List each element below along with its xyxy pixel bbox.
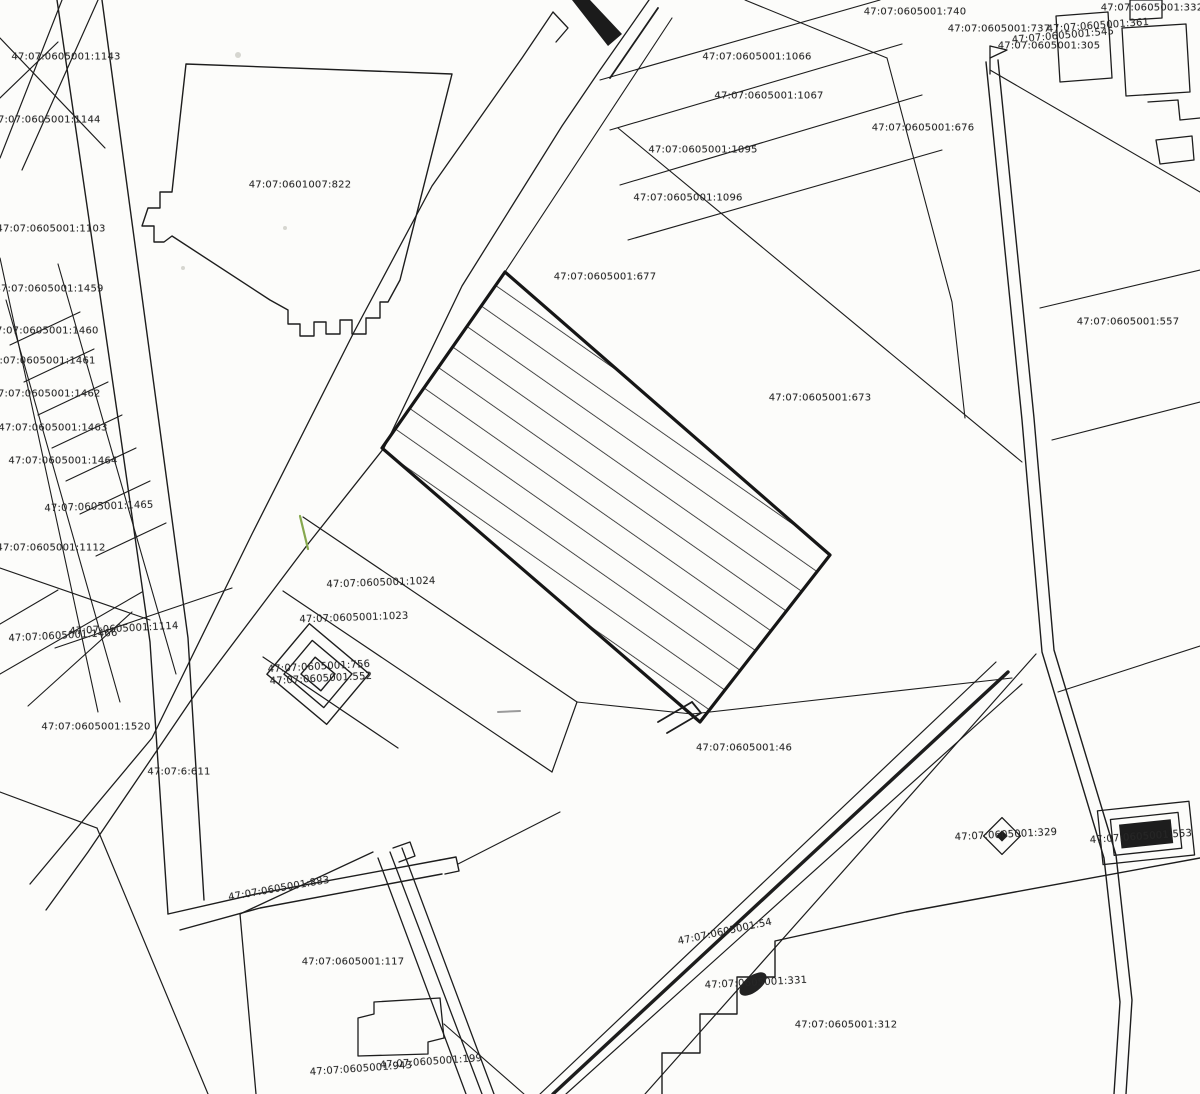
parcel-label: 47:07:0605001:1462: [0, 389, 101, 400]
parcel-label: 47:07:0605001:1112: [0, 543, 106, 554]
scan-specks: [181, 52, 287, 270]
parcel-label: 47:07:0605001:312: [795, 1020, 898, 1031]
parcel-label: 47:07:0605001:673: [769, 393, 872, 404]
parcel-label: 47:07:0605001:557: [1077, 317, 1180, 328]
parcel-label: 47:07:0605001:1520: [41, 722, 150, 733]
parcel-label: 47:07:0605001:740: [864, 7, 967, 18]
parcel-label: 47:07:0605001:332: [1101, 3, 1200, 14]
parcel-label: 47:07:0605001:1464: [8, 456, 117, 467]
parcel-label: 47:07:0605001:1067: [714, 91, 823, 102]
parcel-label: 47:07:0605001:1459: [0, 284, 104, 295]
small-dash-mark: [498, 711, 520, 712]
topleft-boundaries: [0, 0, 105, 170]
bottom-right-road: [540, 654, 1036, 1094]
hatched-parcel: [382, 272, 830, 722]
parcel-label: 47:07:0605001:1095: [648, 145, 757, 156]
parcel-label: 47:07:0605001:1143: [11, 52, 120, 63]
parcel-label: 47:07:0601007:822: [249, 180, 352, 191]
right-boundaries: [1040, 270, 1200, 692]
parcel-label: 47:07:0605001:1144: [0, 115, 101, 126]
parcel-label: 47:07:0605001:1461: [0, 356, 96, 367]
cadastral-map-image: 47:07:0605001:74047:07:0605001:106647:07…: [0, 0, 1200, 1094]
right-street: [986, 46, 1200, 1094]
green-survey-mark: [300, 516, 308, 549]
parcel-label: 47:07:0605001:117: [302, 957, 405, 968]
parcel-label: 47:07:0605001:305: [998, 41, 1101, 52]
parcel-label: 47:07:0605001:1096: [633, 193, 742, 204]
parcel-label: 47:07:0605001:1066: [702, 52, 811, 63]
parcel-label: 47:07:0605001:1103: [0, 224, 106, 235]
staircase-boundary: [662, 858, 1200, 1094]
parcel-label: 47:07:0605001:46: [696, 743, 792, 754]
parcel-label: 47:07:0605001:1460: [0, 326, 99, 337]
parcel-label: 47:07:6:611: [147, 767, 210, 778]
parcel-label: 47:07:0605001:676: [872, 123, 975, 134]
parcel-label: 47:07:0605001:1463: [0, 423, 108, 434]
parcel-822-outline: [142, 64, 452, 336]
cadastral-linework: [0, 0, 1200, 1094]
parcel-label: 47:07:0605001:677: [554, 272, 657, 283]
road-junction-dark-mark: [572, 0, 622, 46]
